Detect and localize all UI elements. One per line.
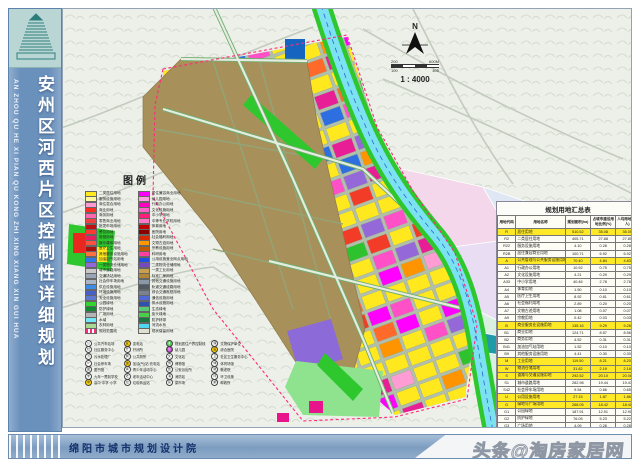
- table-row: G1公园绿地187.9112.9112.90: [498, 408, 633, 415]
- landuse-pct: 18.42: [591, 401, 616, 408]
- legend-label: 公用设施营业网点用地: [152, 257, 188, 262]
- legend-label: 排水设施用地: [152, 301, 174, 306]
- pagoda-icon: [9, 9, 63, 67]
- legend-icon-item: 厕公共厕所: [124, 353, 160, 360]
- watermark-text: 头条@淘房家居网: [472, 437, 626, 459]
- legend-label: 旅馆用地: [99, 235, 113, 240]
- legend-icon-item: 菜菜市场: [166, 380, 206, 387]
- landuse-code: R2B: [498, 250, 516, 257]
- landuse-area: 4.10: [565, 243, 590, 250]
- landuse-code: A: [498, 257, 516, 264]
- legend-label: 街头绿地: [152, 312, 166, 317]
- landuse-code: A9: [498, 315, 516, 322]
- landuse-code: A5: [498, 293, 516, 300]
- table-row: B41加油加气站用地1.520.100.10: [498, 344, 633, 351]
- table-title: 规划用地汇总表: [497, 202, 632, 215]
- scale-tick: 600M: [429, 59, 439, 64]
- legend-icon-label: 污水处理厂: [94, 354, 111, 359]
- table-row: A5医疗卫生用地8.920.610.61: [498, 293, 633, 300]
- landuse-percap: 0.29: [616, 272, 632, 279]
- landuse-percap: 35.05: [616, 229, 632, 236]
- legend-label: 行政办公用地: [152, 202, 174, 207]
- landuse-percap: 0.65: [616, 387, 632, 394]
- legend-icon-label: 文化站: [175, 354, 185, 359]
- landuse-area: 100.71: [565, 250, 590, 257]
- landuse-name: 道路与交通设施用地: [516, 372, 565, 379]
- landuse-percap: 0.07: [616, 308, 632, 315]
- table-row: A1行政办公用地10.920.750.75: [498, 264, 633, 271]
- scale-bar: 200 600M 100 400: [385, 59, 445, 73]
- landuse-name: 广场用地: [516, 423, 565, 428]
- landuse-percap: 12.90: [616, 408, 632, 415]
- legend-label: 文化设施用地: [152, 208, 174, 213]
- landuse-area: 4.09: [565, 423, 590, 428]
- table-row: B9其他服务设施用地4.410.300.30: [498, 351, 633, 358]
- landuse-pct: 0.07: [591, 308, 616, 315]
- landuse-area: 4.21: [565, 272, 590, 279]
- landuse-area: 4.41: [565, 351, 590, 358]
- landuse-code: A2: [498, 272, 516, 279]
- landuse-pct: 0.75: [591, 264, 616, 271]
- facility-icon: 菜: [166, 379, 173, 386]
- landuse-pct: 12.91: [591, 408, 616, 415]
- landuse-pct: 1.87: [591, 394, 616, 401]
- legend-title: 图例: [123, 172, 320, 187]
- landuse-pct: 0.61: [591, 293, 616, 300]
- landuse-area: 268.05: [565, 401, 590, 408]
- landuse-code: S42: [498, 387, 516, 394]
- legend-label: 综合交通枢纽用地: [152, 290, 181, 295]
- landuse-percap: 8.56: [616, 329, 632, 336]
- table-row: G绿地与广场用地268.0518.4218.40: [498, 401, 633, 408]
- legend-label: 现状保留用地: [152, 329, 174, 334]
- legend-icon-label: 公安派出所: [175, 367, 192, 372]
- landuse-name: 工业用地: [516, 358, 565, 365]
- legend-icon-column: 保文物保护单位医综合医院卫社区卫生服务中心体体育场馆敬敬老院环环卫设施邮邮政所: [211, 340, 247, 386]
- landuse-code: B9: [498, 351, 516, 358]
- legend-icon-item: 医综合医院: [211, 347, 247, 354]
- landuse-percap: 2.78: [616, 279, 632, 286]
- landuse-percap: 6.92: [616, 250, 632, 257]
- legend-label: 防护林带: [152, 318, 166, 323]
- landuse-pct: 0.30: [591, 351, 616, 358]
- legend-icon-item: 卫社区卫生服务中心: [211, 353, 247, 360]
- footer-hatch: [9, 435, 61, 458]
- landuse-code: S: [498, 372, 516, 379]
- landuse-percap: 0.61: [616, 293, 632, 300]
- institute-name: 绵阳市城市规划设计院: [69, 440, 199, 455]
- table-row: U公用设施用地27.151.871.86: [498, 394, 633, 401]
- compass-icon: [400, 31, 430, 57]
- landuse-name: 文化设施用地: [516, 272, 565, 279]
- landuse-name: 物流仓储用地: [516, 365, 565, 372]
- landuse-code: B1: [498, 329, 516, 336]
- landuse-percap: 9.28: [616, 322, 632, 329]
- landuse-percap: 0.28: [616, 243, 632, 250]
- legend-icon-label: 公共厕所: [133, 354, 147, 359]
- landuse-area: 124.71: [565, 329, 590, 336]
- landuse-name: 商业服务业设施用地: [516, 322, 565, 329]
- landuse-pct: 0.10: [591, 286, 616, 293]
- scale-tick: 200: [391, 59, 398, 64]
- legend-icon-item: 中高中·中学·小学: [85, 380, 118, 387]
- landuse-name: 商务用地: [516, 336, 565, 343]
- legend-label: 商业用地: [99, 208, 113, 213]
- legend-label: 农林用地: [99, 323, 113, 328]
- legend-icon-label: 图书馆: [94, 367, 104, 372]
- legend-icon-item: 保文物保护单位: [211, 340, 247, 347]
- landuse-percap: 0.10: [616, 286, 632, 293]
- legend-icon-label: 加油(气)站·充电站: [133, 361, 160, 366]
- landuse-percap: 27.85: [616, 236, 632, 243]
- legend-icon-column: ▮规划居住户界控制线幼幼儿园文文化站博博物馆警公安派出所消消防站菜菜市场: [166, 340, 206, 386]
- landuse-name: 服务设施用地: [516, 243, 565, 250]
- landuse-percap: 0.28: [616, 423, 632, 428]
- legend-icon-label: 菜市场: [175, 380, 185, 385]
- legend-label: 防护绿地: [99, 307, 113, 312]
- landuse-area: 510.52: [565, 229, 590, 236]
- landuse-name: 社会福利用地: [516, 300, 565, 307]
- landuse-percap: 0.31: [616, 336, 632, 343]
- scale-ratio: 1 : 4000: [385, 75, 445, 84]
- landuse-percap: 20.08: [616, 372, 632, 379]
- legend-label: 环境设施用地: [99, 290, 121, 295]
- legend-label: 医疗卫生用地: [99, 246, 121, 251]
- legend-swatch: [138, 328, 150, 334]
- landuse-percap: 2.18: [616, 365, 632, 372]
- landuse-pct: 0.10: [591, 344, 616, 351]
- landuse-area: 135.16: [565, 322, 590, 329]
- legend-icon-item: ▮规划居住户界控制线: [166, 340, 206, 347]
- landuse-code: R2: [498, 236, 516, 243]
- landuse-code: G1: [498, 408, 516, 415]
- landuse-area: 2.89: [565, 300, 590, 307]
- legend-label: 安全设施用地: [99, 296, 121, 301]
- legend-icon-label: 敬老院: [220, 367, 230, 372]
- landuse-name: 防护绿地: [516, 415, 565, 422]
- legend-icon-item: 体体育场馆: [211, 360, 247, 367]
- legend-label: 娱乐康体用地: [99, 241, 121, 246]
- legend-label: 水域: [99, 318, 106, 323]
- landuse-code: A1: [498, 264, 516, 271]
- legend-icon-item: 敬敬老院: [211, 366, 247, 373]
- landuse-percap: 0.75: [616, 264, 632, 271]
- facility-icon: 中: [85, 379, 92, 386]
- landuse-code: G2: [498, 415, 516, 422]
- table-row: S道路与交通设施用地292.5220.1020.08: [498, 372, 633, 379]
- landuse-percap: 4.83: [616, 257, 632, 264]
- table-header-cell: 规划面积(ha): [565, 216, 590, 229]
- legend-icon-label: 公共汽车站场: [94, 341, 114, 346]
- landuse-name: 公园绿地: [516, 408, 565, 415]
- legend-icon-label: 高中·中学·小学: [94, 380, 117, 385]
- legend-label: 其他服务设施用地: [99, 252, 128, 257]
- landuse-pct: 0.66: [591, 387, 616, 394]
- footer-bar: 绵阳市城市规划设计院 头条@淘房家居网: [8, 434, 632, 459]
- landuse-area: 40.46: [565, 279, 590, 286]
- legend-label: 居住兼容商业用地: [152, 191, 181, 196]
- legend-item: 规划范围线: [85, 329, 128, 335]
- landuse-name: 绿地与广场用地: [516, 401, 565, 408]
- legend-label: 规划范围线: [99, 329, 117, 334]
- landuse-area: 4.52: [565, 336, 590, 343]
- table-row: A7文物古迹用地1.080.070.07: [498, 308, 633, 315]
- legend-icon-item: 幼幼儿园: [166, 347, 206, 354]
- legend-swatch: [85, 328, 97, 334]
- legend-icon-label: 环卫设施: [220, 374, 234, 379]
- legend-label: 轨道交通线路用地: [152, 285, 181, 290]
- landuse-name: 社会停车场用地: [516, 387, 565, 394]
- landuse-name: 中小学用地: [516, 279, 565, 286]
- legend-label: 加油加气站用地: [99, 257, 124, 262]
- landuse-name: 其他服务设施用地: [516, 351, 565, 358]
- table-row: B1商业用地124.718.578.56: [498, 329, 633, 336]
- plan-title-vertical: 安州区河西片区控制性详细规划: [32, 75, 57, 369]
- landuse-pct: 8.57: [591, 329, 616, 336]
- landuse-code: M: [498, 358, 516, 365]
- legend-icon-column: 变变电站开开闭所厕公共厕所油加油(气)站·充电站青青少年活动中心老老年活动中心垃…: [124, 340, 160, 386]
- landuse-name: 加油加气站用地: [516, 344, 565, 351]
- legend-label: 体育用地: [152, 224, 166, 229]
- table-header-cell: 人均用地(㎡/人): [616, 216, 632, 229]
- legend-label: 餐饮用地: [99, 230, 113, 235]
- landuse-code: A7: [498, 308, 516, 315]
- landuse-pct: 0.28: [591, 423, 616, 428]
- landuse-pct: 0.29: [591, 272, 616, 279]
- legend-label: 商务用地: [99, 213, 113, 218]
- legend-icon-label: 综合医院: [220, 347, 234, 352]
- legend-icon-item: 垃垃圾转运站: [124, 380, 160, 387]
- landuse-pct: 0.28: [591, 243, 616, 250]
- legend-icon-label: 老年活动中心: [133, 374, 153, 379]
- landuse-pct: 0.03: [591, 315, 616, 322]
- title-sidebar: 安州区河西片区控制性详细规划 AN ZHOU QU HE XI PIAN QU …: [8, 8, 62, 432]
- table-row: A4体育用地1.500.100.10: [498, 286, 633, 293]
- landuse-pct: 4.84: [591, 257, 616, 264]
- legend-label: 通信设施用地: [152, 296, 174, 301]
- legend-label: 广场用地: [99, 312, 113, 317]
- legend-icon-label: 九年一贯制学校: [94, 374, 118, 379]
- landuse-pct: 27.88: [591, 236, 616, 243]
- landuse-percap: 0.03: [616, 315, 632, 322]
- table-row: A33中小学用地40.462.782.78: [498, 279, 633, 286]
- landuse-name: 体育用地: [516, 286, 565, 293]
- landuse-name: 行政办公用地: [516, 264, 565, 271]
- legend-icon-label: 邮政所: [220, 380, 230, 385]
- landuse-code: B2: [498, 336, 516, 343]
- legend-label: 标准厂房用地: [152, 274, 174, 279]
- landuse-pct: 20.10: [591, 372, 616, 379]
- landuse-code: A33: [498, 279, 516, 286]
- legend-label: 中等专业学校用地: [152, 219, 181, 224]
- legend-label: 服务设施用地: [99, 197, 121, 202]
- legend-label: 河流水系: [152, 323, 166, 328]
- legend-label: 城市道路用地: [99, 268, 121, 273]
- landuse-pct: 8.21: [591, 358, 616, 365]
- table-row: G3广场用地4.090.280.28: [498, 423, 633, 428]
- landuse-code: B: [498, 322, 516, 329]
- watermark-band: 头条@淘房家居网: [415, 435, 631, 458]
- landuse-area: 9.54: [565, 387, 590, 394]
- legend-label: 供应设施用地: [99, 285, 121, 290]
- scale-tick: 400: [432, 68, 439, 73]
- table-row: M工业用地119.508.218.20: [498, 358, 633, 365]
- table-header-row: 用地代码用地名称规划面积(ha)占城市建设用地比例(%)人均用地(㎡/人): [498, 216, 633, 229]
- legend-icon-item: 环环卫设施: [211, 373, 247, 380]
- legend-icon-label: 博物馆: [175, 361, 185, 366]
- table-header-cell: 占城市建设用地比例(%): [591, 216, 616, 229]
- landuse-percap: 0.30: [616, 351, 632, 358]
- landuse-percap: 5.22: [616, 415, 632, 422]
- legend-icon-label: 体育场馆: [220, 361, 234, 366]
- landuse-code: U: [498, 394, 516, 401]
- legend-icon-item: 油加油(气)站·充电站: [124, 360, 160, 367]
- landuse-pct: 0.31: [591, 336, 616, 343]
- legend-icon-item: 消消防站: [166, 373, 206, 380]
- legend-icon-label: 开闭所: [133, 347, 143, 352]
- legend-label: 二类物流仓储用地: [152, 263, 181, 268]
- landuse-name: 二类居住用地: [516, 236, 565, 243]
- table-row: R2B居住兼容商业用地100.716.926.92: [498, 250, 633, 257]
- north-label: N: [385, 23, 445, 31]
- legend-icon-column: 公公共汽车站场社社区服务中心污污水处理厂P社会停车场图图书馆学九年一贯制学校中高…: [85, 340, 118, 386]
- legend-icon-label: 规划居住户界控制线: [175, 341, 206, 346]
- landuse-pct: 5.23: [591, 415, 616, 422]
- table-row: A6社会福利用地2.890.200.20: [498, 300, 633, 307]
- landuse-area: 405.71: [565, 236, 590, 243]
- legend-label: 其他交通设施用地: [152, 279, 181, 284]
- legend-column-right: 居住兼容商业用地幼儿园用地行政办公用地文化设施用地中小学用地中等专业学校用地体育…: [138, 191, 188, 334]
- table-row: R22服务设施用地4.100.280.28: [498, 243, 633, 250]
- table-row: A公共管理与公共服务设施用地70.404.844.83: [498, 257, 633, 264]
- map-area: N 200 600M 100 400 1 : 4000 图例: [62, 8, 632, 428]
- legend-icon-label: 变电站: [133, 341, 143, 346]
- landuse-name: 公用设施用地: [516, 394, 565, 401]
- legend-icon-label: 社区卫生服务中心: [220, 354, 247, 359]
- landuse-name: 商业用地: [516, 329, 565, 336]
- legend-label: 科研用地: [152, 252, 166, 257]
- legend-label: 幼儿园用地: [152, 197, 170, 202]
- table-row: B商业服务业设施用地135.169.299.28: [498, 322, 633, 329]
- landuse-name: 公共管理与公共服务设施用地: [516, 257, 565, 264]
- legend-label: 文物古迹用地: [152, 241, 174, 246]
- landuse-pct: 0.20: [591, 300, 616, 307]
- legend-icon-label: 社区服务中心: [94, 347, 114, 352]
- landuse-code: R22: [498, 243, 516, 250]
- legend-label: 医院用地: [152, 230, 166, 235]
- facility-icon: 邮: [211, 379, 218, 386]
- legend-label: 商住混合用地: [99, 202, 121, 207]
- landuse-percap: 8.20: [616, 358, 632, 365]
- landuse-pct: 9.29: [591, 322, 616, 329]
- facility-icon: 垃: [124, 379, 131, 386]
- landuse-pct: 2.19: [591, 365, 616, 372]
- landuse-code: A6: [498, 300, 516, 307]
- landuse-area: 187.91: [565, 408, 590, 415]
- legend-label: 社会福利用地: [152, 235, 174, 240]
- legend-icon-label: 文物保护单位: [220, 341, 240, 346]
- legend-label: 批发市场用地: [99, 224, 121, 229]
- landuse-name: 居住用地: [516, 229, 565, 236]
- landuse-code: A4: [498, 286, 516, 293]
- landuse-pct: 2.78: [591, 279, 616, 286]
- landuse-area: 292.52: [565, 372, 590, 379]
- landuse-area: 31.82: [565, 365, 590, 372]
- north-arrow: N 200 600M 100 400 1 : 4000: [385, 23, 445, 84]
- legend-icon-item: 开开闭所: [124, 347, 160, 354]
- legend-label: 宗教设施用地: [152, 246, 174, 251]
- table-row: W物流仓储用地31.822.192.18: [498, 365, 633, 372]
- table-row: S1城市道路用地282.9819.4419.43: [498, 379, 633, 386]
- scale-tick: 100: [391, 68, 398, 73]
- landuse-code: G: [498, 401, 516, 408]
- landuse-summary-table: 规划用地汇总表 用地代码用地名称规划面积(ha)占城市建设用地比例(%)人均用地…: [496, 201, 632, 428]
- landuse-area: 10.92: [565, 264, 590, 271]
- plan-sheet: 安州区河西片区控制性详细规划 AN ZHOU QU HE XI PIAN QU …: [0, 0, 640, 465]
- legend-icon-item: 图图书馆: [85, 366, 118, 373]
- legend-icon-item: 社社区服务中心: [85, 347, 118, 354]
- institute-emblem: [9, 9, 61, 68]
- landuse-percap: 19.43: [616, 379, 632, 386]
- legend-column-left: 二类居住用地服务设施用地商住混合用地商业用地商务用地零售商业用地批发市场用地餐饮…: [85, 191, 128, 334]
- table-header-cell: 用地代码: [498, 216, 516, 229]
- legend-icon-label: 青少年活动中心: [133, 367, 157, 372]
- legend-icon-item: 博博物馆: [166, 360, 206, 367]
- legend-label: 交通场站用地: [99, 274, 121, 279]
- landuse-area: 27.15: [565, 394, 590, 401]
- legend-icon-label: 垃圾转运站: [133, 380, 150, 385]
- legend-label: 二类居住用地: [99, 191, 121, 196]
- landuse-pct: 6.92: [591, 250, 616, 257]
- landuse-name: 居住兼容商业用地: [516, 250, 565, 257]
- table-row: R2二类居住用地405.7127.8827.85: [498, 236, 633, 243]
- landuse-code: G3: [498, 423, 516, 428]
- landuse-name: 医疗卫生用地: [516, 293, 565, 300]
- map-legend: 图例 二类居住用地服务设施用地商住混合用地商业用地商务用地零售商业用地批发市场用…: [85, 172, 320, 386]
- table-row: S42社会停车场用地9.540.660.65: [498, 387, 633, 394]
- legend-label: 一类物流仓储用地: [99, 263, 128, 268]
- table-row: R居住用地510.5235.0835.05: [498, 229, 633, 236]
- landuse-percap: 1.86: [616, 394, 632, 401]
- landuse-area: 70.40: [565, 257, 590, 264]
- landuse-code: B41: [498, 344, 516, 351]
- landuse-pct: 19.44: [591, 379, 616, 386]
- landuse-code: S1: [498, 379, 516, 386]
- table-row: G2防护绿地76.055.235.22: [498, 415, 633, 422]
- landuse-name: 文物古迹用地: [516, 308, 565, 315]
- plan-title-pinyin: AN ZHOU QU HE XI PIAN QU KONG ZHI XING X…: [12, 79, 19, 339]
- landuse-area: 282.98: [565, 379, 590, 386]
- legend-icons: 公公共汽车站场社社区服务中心污污水处理厂P社会停车场图图书馆学九年一贯制学校中高…: [85, 340, 320, 386]
- landuse-area: 0.42: [565, 315, 590, 322]
- table-row: B2商务用地4.520.310.31: [498, 336, 633, 343]
- landuse-area: 8.92: [565, 293, 590, 300]
- legend-icon-item: 污污水处理厂: [85, 353, 118, 360]
- landuse-area: 119.50: [565, 358, 590, 365]
- legend-icon-item: 警公安派出所: [166, 366, 206, 373]
- legend-icon-label: 消防站: [175, 374, 185, 379]
- landuse-percap: 0.20: [616, 300, 632, 307]
- legend-icon-label: 幼儿园: [175, 347, 185, 352]
- landuse-area: 1.08: [565, 308, 590, 315]
- landuse-area: 76.05: [565, 415, 590, 422]
- legend-icon-item: 青青少年活动中心: [124, 366, 160, 373]
- table-row: A2文化设施用地4.210.290.29: [498, 272, 633, 279]
- landuse-area: 1.52: [565, 344, 590, 351]
- table-header-cell: 用地名称: [516, 216, 565, 229]
- landuse-percap: 0.10: [616, 344, 632, 351]
- legend-icon-item: 邮邮政所: [211, 380, 247, 387]
